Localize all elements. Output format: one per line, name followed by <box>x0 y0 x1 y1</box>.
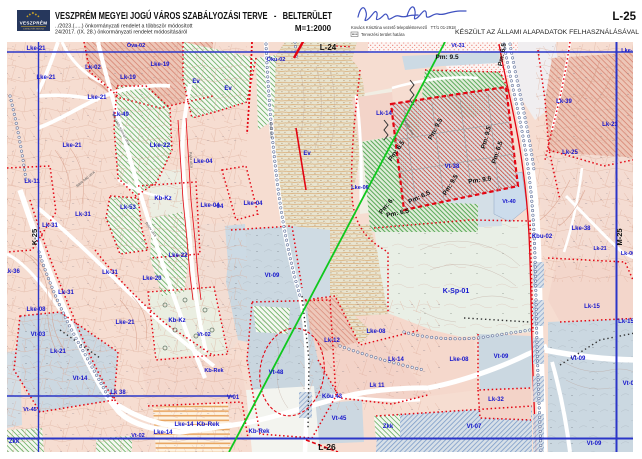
svg-text:L-24: L-24 <box>320 43 337 52</box>
svg-text:Vt-48: Vt-48 <box>269 370 284 376</box>
svg-text:Kb-Rek: Kb-Rek <box>204 368 224 374</box>
svg-text:Vt-09: Vt-09 <box>571 356 586 362</box>
svg-text:Köu 43: Köu 43 <box>322 394 343 400</box>
svg-text:Aradi utca: Aradi utca <box>269 122 274 138</box>
svg-text:Lk-15: Lk-15 <box>584 304 600 310</box>
svg-text:KÉSZÜLT AZ ÁLLAMI ALAPADATOK F: KÉSZÜLT AZ ÁLLAMI ALAPADATOK FELHASZNÁLÁ… <box>455 29 640 36</box>
svg-text:Lke-08: Lke-08 <box>366 329 386 335</box>
svg-text:Lke-21: Lke-21 <box>62 143 82 149</box>
svg-text:Vt-40: Vt-40 <box>502 199 515 205</box>
svg-text:Lke-21: Lke-21 <box>87 95 107 101</box>
svg-text:Öva-02: Öva-02 <box>127 42 145 49</box>
svg-text:Lk-12: Lk-12 <box>324 338 340 344</box>
svg-text:Lke-19: Lke-19 <box>150 62 170 68</box>
svg-text:Vt-31: Vt-31 <box>451 43 464 49</box>
svg-text:Lk 38: Lk 38 <box>110 390 126 396</box>
svg-text:Vt-09: Vt-09 <box>265 273 280 279</box>
svg-text:K-25: K-25 <box>30 229 39 245</box>
svg-text:Lk-21: Lk-21 <box>50 349 66 355</box>
svg-text:Lke-21: Lke-21 <box>115 320 135 326</box>
svg-text:Lke-08: Lke-08 <box>449 357 469 363</box>
svg-text:Kovács Krisztina vezető telepü: Kovács Krisztina vezető településtervező… <box>351 25 456 30</box>
svg-text:Lk-53: Lk-53 <box>120 205 136 211</box>
svg-text:Kb-Kz: Kb-Kz <box>168 318 185 324</box>
svg-text:Vt-38: Vt-38 <box>445 164 460 170</box>
svg-text:Lk 11: Lk 11 <box>369 383 385 389</box>
svg-text:A KIRÁLYNÉK VÁROSA: A KIRÁLYNÉK VÁROSA <box>23 28 44 31</box>
svg-text:Tervezési terület határa: Tervezési terület határa <box>361 32 405 37</box>
svg-text:L-25: L-25 <box>612 11 636 23</box>
svg-text:Lke-21: Lke-21 <box>36 75 56 81</box>
svg-text:Vt-07: Vt-07 <box>467 424 482 430</box>
svg-text:Vt-45: Vt-45 <box>332 416 347 422</box>
svg-text:Ev: Ev <box>192 79 200 85</box>
svg-text:Vt-02: Vt-02 <box>197 332 210 338</box>
svg-text:Lk-23: Lk-23 <box>602 122 618 128</box>
svg-text:Lke-14: Lke-14 <box>174 422 194 428</box>
svg-text:Lk-15: Lk-15 <box>618 319 634 325</box>
svg-text:-04: -04 <box>215 204 224 210</box>
svg-text:M=1:2000: M=1:2000 <box>295 24 332 33</box>
svg-text:Öku-02: Öku-02 <box>267 56 286 63</box>
svg-text:Lke-06: Lke-06 <box>351 185 368 191</box>
svg-text:Lk-32: Lk-32 <box>488 397 504 403</box>
svg-text:Vt-45: Vt-45 <box>23 407 36 413</box>
svg-text:Lke-22: Lke-22 <box>150 142 171 149</box>
svg-text:Lk-14: Lk-14 <box>388 357 404 363</box>
svg-text:Kb-Rek: Kb-Rek <box>197 421 220 428</box>
svg-text:Lk-19: Lk-19 <box>120 75 136 81</box>
svg-text:Lk-11: Lk-11 <box>24 179 40 185</box>
svg-text:Lk-31: Lk-31 <box>102 270 118 276</box>
svg-text:Vt-03: Vt-03 <box>31 332 46 338</box>
svg-text:Vt-09: Vt-09 <box>587 441 602 447</box>
svg-text:Ev: Ev <box>224 86 232 92</box>
svg-text:L-26: L-26 <box>318 442 336 452</box>
svg-text:Kbu-02: Kbu-02 <box>532 234 553 240</box>
svg-text:Lke-04: Lke-04 <box>243 201 263 207</box>
svg-text:Lke-20: Lke-20 <box>142 276 162 282</box>
svg-text:Pm: 9.5: Pm: 9.5 <box>435 54 459 61</box>
svg-text:Lk-31: Lk-31 <box>42 223 58 229</box>
svg-text:Lke-04: Lke-04 <box>193 159 213 165</box>
svg-text:Lke-22: Lke-22 <box>168 253 188 259</box>
svg-text:K-Sp-01: K-Sp-01 <box>443 288 470 295</box>
svg-text:Lke-21: Lke-21 <box>26 46 46 52</box>
svg-text:Lk-31: Lk-31 <box>58 290 74 296</box>
svg-text:Vt-02: Vt-02 <box>131 433 144 439</box>
svg-text:Lk-25: Lk-25 <box>562 150 578 156</box>
svg-text:Lk-21: Lk-21 <box>593 246 606 252</box>
svg-text:VESZPRÉM MEGYEI JOGÚ VÁROS SZA: VESZPRÉM MEGYEI JOGÚ VÁROS SZABÁLYOZÁSI … <box>55 9 333 22</box>
svg-text:Lke-38: Lke-38 <box>571 226 591 232</box>
svg-text:Lk-31: Lk-31 <box>75 212 91 218</box>
svg-text:24/2017. (IX. 28.) önkormányza: 24/2017. (IX. 28.) önkormányzati rendele… <box>55 30 187 36</box>
svg-text:V-01: V-01 <box>227 395 240 401</box>
svg-text:Lke-08: Lke-08 <box>26 307 46 313</box>
svg-text:Vt-09: Vt-09 <box>494 354 509 360</box>
svg-text:Lk-02: Lk-02 <box>85 65 101 71</box>
svg-text:VESZPRÉM: VESZPRÉM <box>20 19 48 26</box>
svg-text:Ev: Ev <box>303 151 311 157</box>
svg-text:Vt-14: Vt-14 <box>73 376 88 382</box>
svg-text:Lk-39: Lk-39 <box>556 99 572 105</box>
svg-text:Kb-Kz: Kb-Kz <box>154 196 171 202</box>
svg-text:Lke-14: Lke-14 <box>153 430 173 436</box>
svg-text:Zkk: Zkk <box>9 439 20 445</box>
svg-text:Kb-Rek: Kb-Rek <box>248 429 270 435</box>
svg-text:M-25: M-25 <box>615 228 624 245</box>
svg-text:Zkk: Zkk <box>383 424 394 430</box>
svg-text:Lk-14: Lk-14 <box>376 111 392 117</box>
